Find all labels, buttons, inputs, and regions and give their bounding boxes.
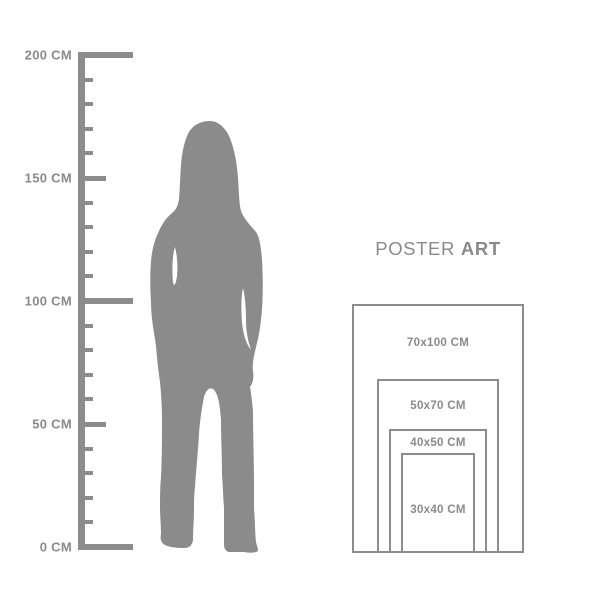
woman-silhouette-path: [150, 121, 263, 553]
title-word-poster: POSTER: [375, 238, 455, 259]
size-label-70x100: 70x100 CM: [407, 337, 469, 349]
size-label-30x40: 30x40 CM: [410, 504, 465, 516]
poster-art-title: POSTERART: [375, 238, 501, 260]
size-label-40x50: 40x50 CM: [410, 437, 465, 449]
size-label-50x70: 50x70 CM: [410, 400, 465, 412]
size-guide-infographic: 200 CM150 CM100 CM50 CM0 CM POSTERART 70…: [0, 0, 600, 600]
title-word-art: ART: [461, 238, 501, 259]
